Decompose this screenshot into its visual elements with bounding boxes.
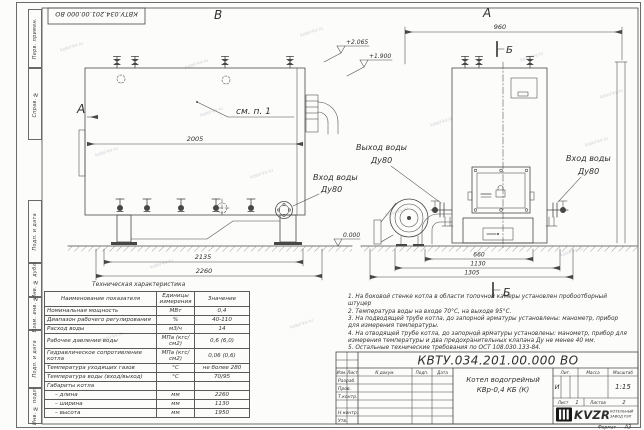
- tech-header-unit: Единицы измерения: [157, 292, 195, 307]
- left-view: см. п. 1 Вход воды Ду80: [68, 8, 392, 280]
- top-stamp-designation: КВТУ.034.201.00.000 ВО: [55, 10, 137, 18]
- sheets-value: 2: [622, 400, 625, 406]
- left-view-inlet-size: Ду80: [320, 185, 342, 194]
- company-name-line1: КОТЕЛЬНЫЙ: [610, 409, 634, 414]
- margin-label-perv-primen: Перв. примен.: [28, 9, 42, 68]
- format-value: А3: [624, 425, 632, 430]
- margin-label-vzam-inv: Взам. инв. №: [28, 297, 42, 330]
- left-view-inlet-label: Вход воды: [313, 173, 358, 182]
- tech-table: Наименование показателя Единицы измерени…: [44, 291, 250, 418]
- table-row: Расход водым3/ч14: [45, 325, 250, 334]
- rev-header-data: Дата: [436, 370, 448, 375]
- row-tkontr: Т.контр.: [338, 394, 358, 400]
- dim-1305: 1305: [464, 270, 479, 277]
- tech-table-header: Наименование показателя Единицы измерени…: [45, 292, 250, 307]
- tech-table-title: Техническая характеристика: [92, 281, 185, 288]
- note-1: 1. На боковой стенке котла в области топ…: [348, 294, 630, 308]
- sheets-label: Листов: [589, 400, 606, 405]
- format-label: Формат: [598, 425, 617, 430]
- drawing-sheet: kotel-kv.ru kotel-kv.ru kotel-kv.ru kote…: [0, 0, 644, 430]
- table-row: Температура воды (вход/выход)°С70/95: [45, 373, 250, 382]
- company-name-line2: ЗАВОД РЭП: [610, 415, 632, 419]
- note-3: 3. На подводящей трубе котла, до запорно…: [348, 316, 630, 330]
- scale-value: 1:15: [615, 383, 631, 391]
- company-logo: KVZR КОТЕЛЬНЫЙ ЗАВОД РЭП: [556, 408, 634, 423]
- rev-header-ndoc: N докум.: [375, 370, 394, 375]
- lit-value: И: [555, 383, 560, 391]
- note-4: 4. На отводящей трубе котла, до запорной…: [348, 331, 630, 345]
- view-label-a-side: А: [76, 102, 85, 116]
- margin-label-podp-data-1: Подп. и дата: [28, 200, 42, 263]
- table-row: – длинамм2260: [45, 391, 250, 400]
- table-row: Рабочее давление водыМПа (кгс/см2)0,6 (6…: [45, 334, 250, 349]
- lit-label: Лит.: [560, 370, 571, 375]
- note-2: 2. Температура воды на входе 70°С, на вы…: [348, 309, 630, 316]
- margin-label-sprav-no: Справ. №: [28, 68, 42, 140]
- dim-1130: 1130: [470, 261, 485, 268]
- rev-header-list: Лист: [346, 370, 358, 375]
- table-row: – высотамм1950: [45, 409, 250, 418]
- table-row: Температура уходящих газов°Сне более 280: [45, 364, 250, 373]
- mass-label: Масса: [586, 370, 600, 375]
- row-utv: Утв.: [338, 418, 347, 424]
- elevation-0000: 0.000: [343, 232, 360, 239]
- right-view: 960 660 1130 1305 Выход воды Ду80 Вход в…: [356, 6, 637, 299]
- elevation-2065: +2.065: [346, 39, 368, 46]
- title-block: КВТУ.034.201.00.000 ВО Изм. Лист N докум…: [336, 352, 638, 430]
- outlet-label: Выход воды: [356, 143, 407, 152]
- company-logo-text: KVZR: [574, 408, 610, 422]
- row-prov: Пров.: [338, 386, 351, 392]
- table-row: Диапазон рабочего регулирования%40-110: [45, 316, 250, 325]
- technical-notes: 1. На боковой стенке котла в области топ…: [348, 294, 630, 353]
- sheet-value: 1: [575, 400, 578, 406]
- margin-label-inv-dubl: Инв. № дубл.: [28, 263, 42, 297]
- dim-2260: 2260: [196, 267, 213, 275]
- tech-header-name: Наименование показателя: [45, 292, 157, 307]
- scale-label: Масштаб: [613, 370, 633, 375]
- title-block-designation: КВТУ.034.201.00.000 ВО: [418, 354, 579, 368]
- view-label-v: В: [214, 8, 222, 22]
- table-row: – ширинамм1130: [45, 400, 250, 409]
- sheet-label: Лист: [557, 400, 569, 405]
- top-stamp: КВТУ.034.201.00.000 ВО: [48, 8, 145, 24]
- margin-label-inv-podl: Инв. № подл.: [28, 388, 42, 424]
- section-mark-b-top: Б: [506, 45, 513, 56]
- row-razrab: Разраб.: [338, 378, 356, 384]
- elevation-1900: +1.900: [369, 53, 391, 60]
- rev-header-izm: Изм.: [337, 370, 347, 375]
- inlet-size: Ду80: [577, 167, 599, 176]
- dim-2135: 2135: [195, 253, 212, 261]
- row-nkontr: Н.контр.: [338, 410, 358, 416]
- dim-960: 960: [494, 23, 506, 31]
- table-row: Номинальная мощностьМВт0,4: [45, 307, 250, 316]
- table-row: Гидравлическое сопротивление котлаМПа (к…: [45, 349, 250, 364]
- dim-2005: 2005: [187, 135, 204, 143]
- product-name-line2: КВр-0,4 КБ (К): [477, 386, 530, 394]
- inlet-label: Вход воды: [566, 154, 611, 163]
- product-name-line1: Котел водогрейный: [466, 376, 540, 384]
- view-label-a-top: А: [482, 6, 491, 20]
- rev-header-podp: Подп.: [416, 370, 429, 375]
- tech-header-value: Значение: [195, 292, 250, 307]
- margin-label-podp-data-2: Подп. и дата: [28, 330, 42, 388]
- table-row: Габариты котла: [45, 382, 250, 391]
- see-item-note: см. п. 1: [236, 107, 271, 117]
- dim-660: 660: [473, 252, 485, 259]
- note-5: 5. Остальные технические требования по О…: [348, 345, 630, 352]
- outlet-size: Ду80: [370, 156, 392, 165]
